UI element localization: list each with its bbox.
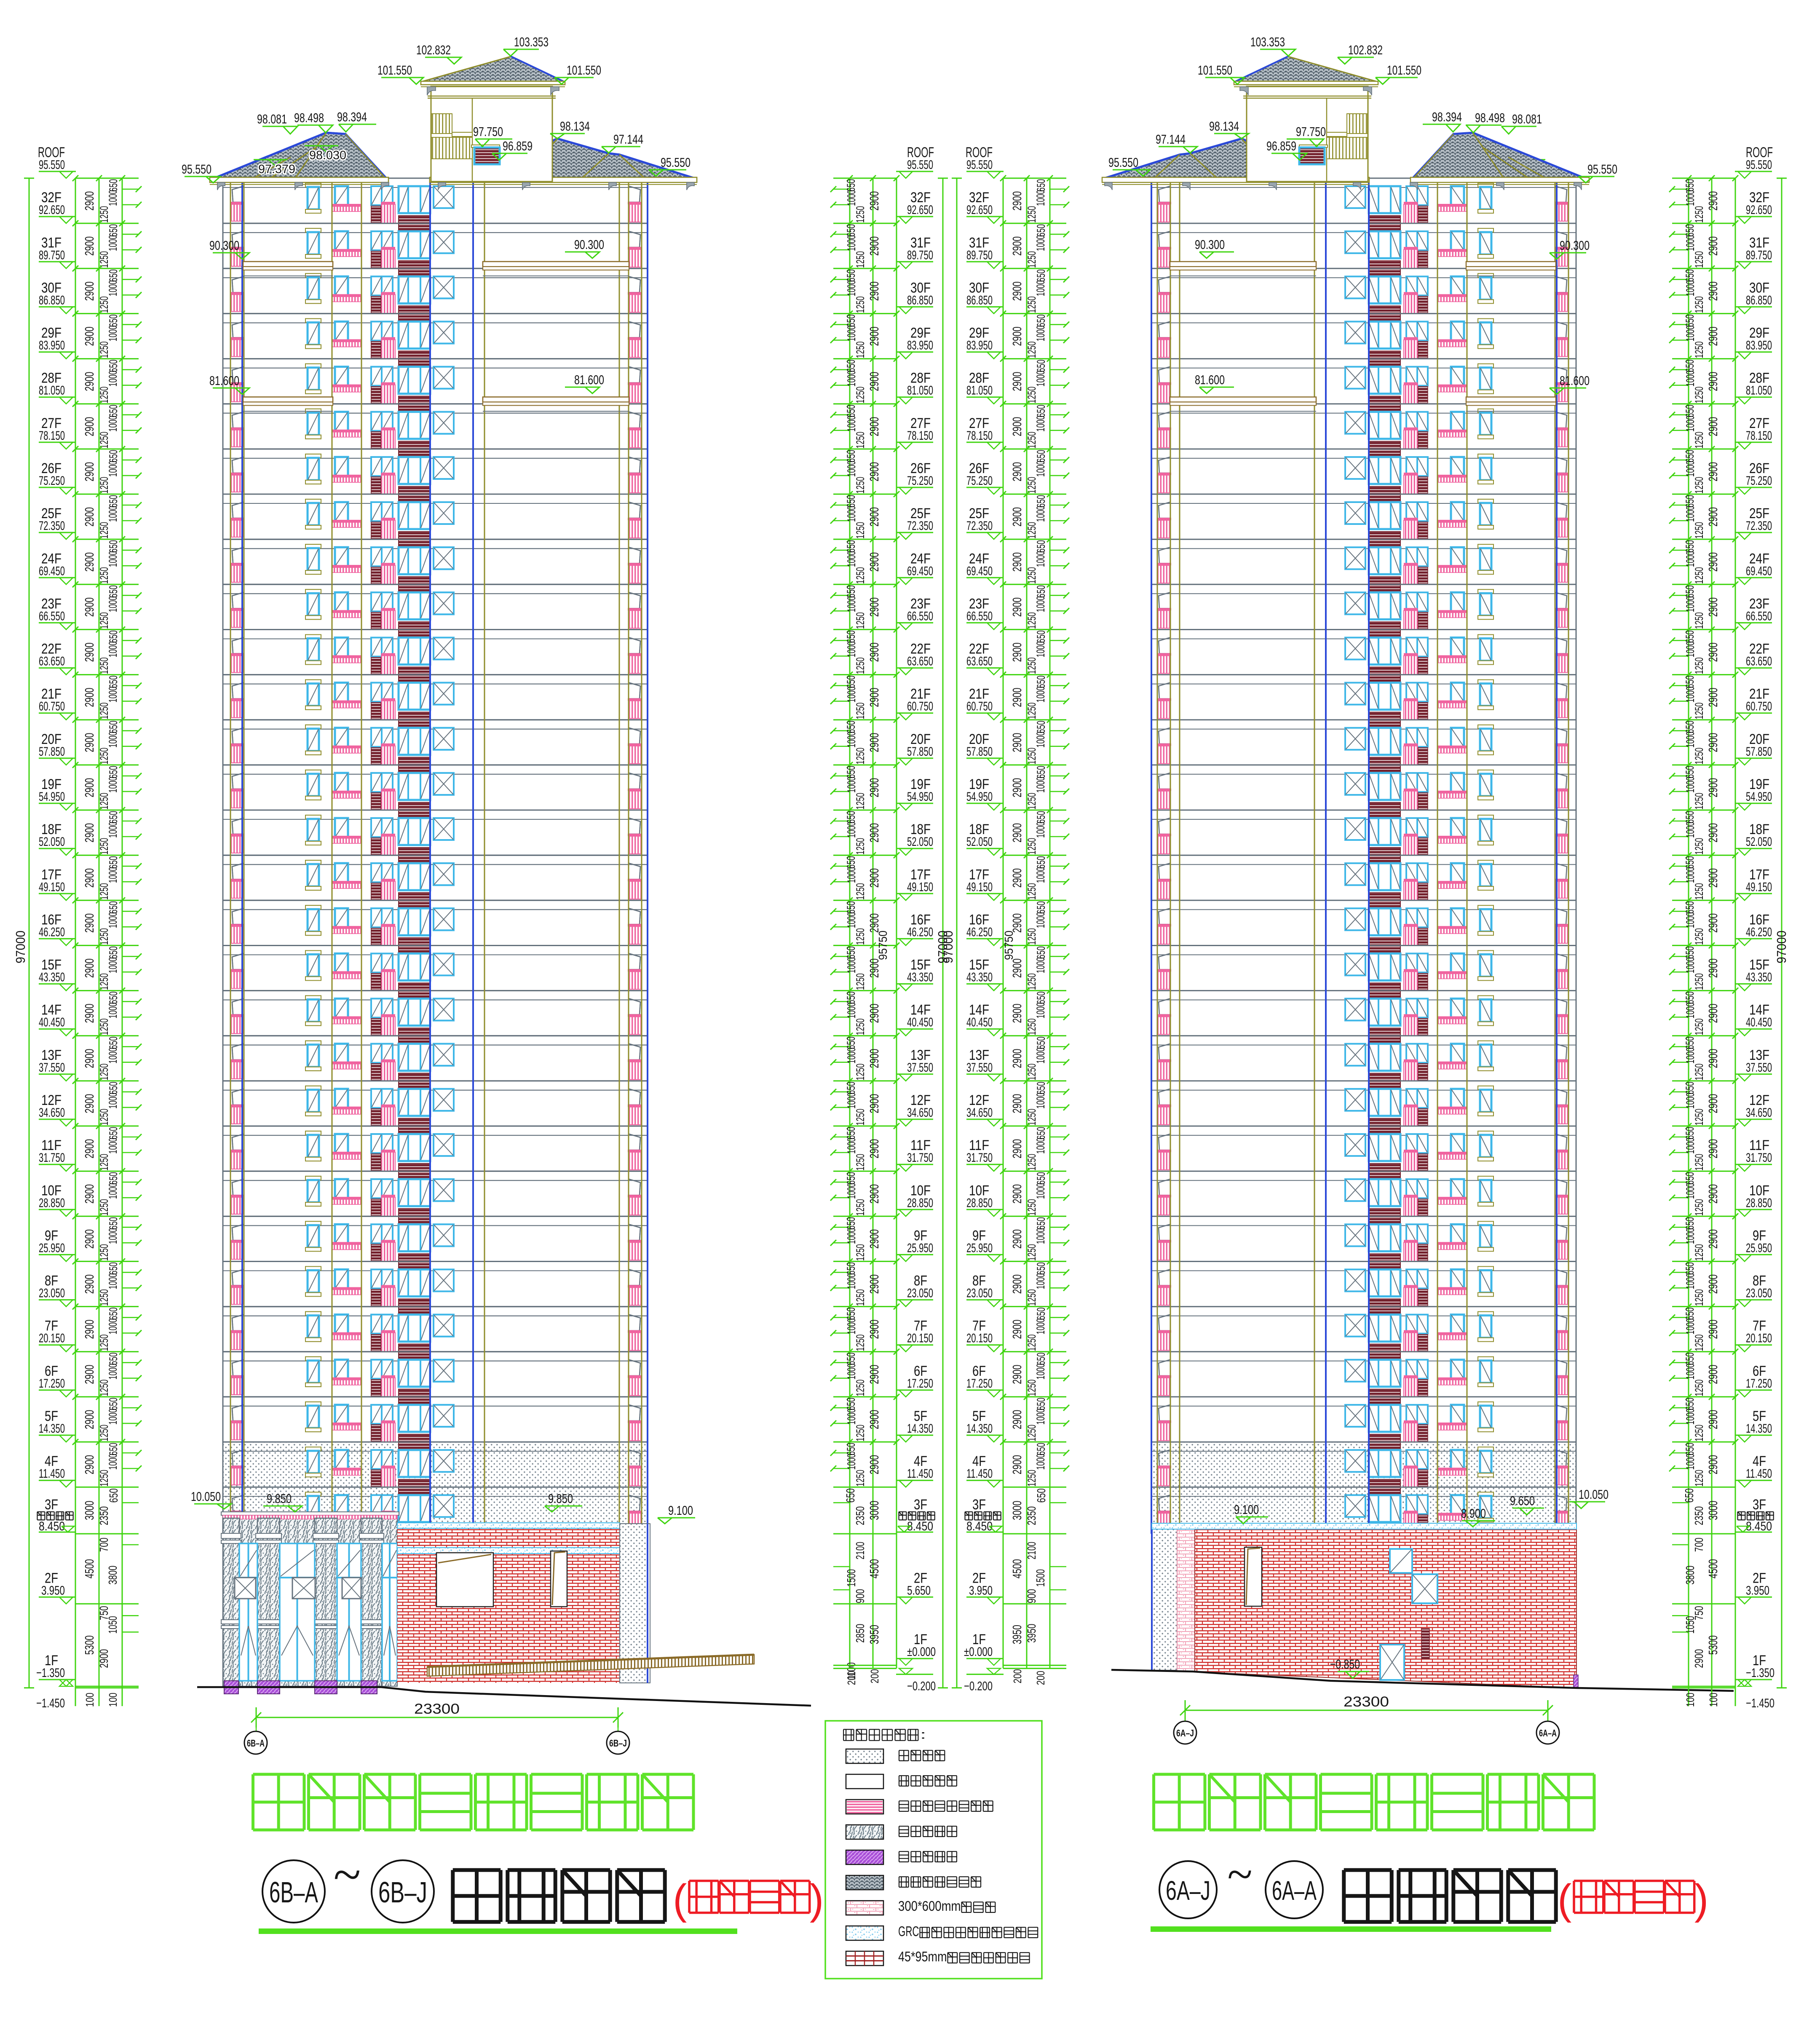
svg-text:97000: 97000 xyxy=(13,931,28,963)
svg-text:650: 650 xyxy=(1683,630,1696,643)
svg-text:95750: 95750 xyxy=(1002,931,1015,960)
svg-text:1250: 1250 xyxy=(1693,793,1705,810)
svg-text:1000: 1000 xyxy=(845,280,858,296)
svg-text:1000: 1000 xyxy=(1034,957,1047,973)
svg-text:1000: 1000 xyxy=(845,551,858,567)
svg-text:63.650: 63.650 xyxy=(39,655,65,669)
svg-text:650: 650 xyxy=(1683,405,1696,417)
svg-text:1000: 1000 xyxy=(845,641,858,657)
svg-text:46.250: 46.250 xyxy=(1746,925,1772,939)
svg-text:1000: 1000 xyxy=(1034,596,1047,612)
svg-text:2900: 2900 xyxy=(1707,1094,1720,1113)
svg-text:2900: 2900 xyxy=(868,417,881,436)
svg-text:1250: 1250 xyxy=(98,1470,110,1487)
svg-text:1000: 1000 xyxy=(107,1409,119,1425)
svg-text:11.450: 11.450 xyxy=(1746,1467,1772,1481)
svg-text:1000: 1000 xyxy=(1684,416,1697,432)
svg-text:1000: 1000 xyxy=(107,1093,119,1109)
svg-text:66.550: 66.550 xyxy=(39,609,65,623)
svg-text:650: 650 xyxy=(845,1308,857,1320)
svg-text:1000: 1000 xyxy=(107,732,119,748)
svg-text:650: 650 xyxy=(845,269,857,282)
svg-text:1250: 1250 xyxy=(1693,973,1705,990)
svg-text:1000: 1000 xyxy=(107,1138,119,1154)
svg-text:650: 650 xyxy=(845,1353,857,1365)
svg-text:23.050: 23.050 xyxy=(907,1286,933,1300)
svg-text:1250: 1250 xyxy=(98,567,110,584)
svg-text:3950: 3950 xyxy=(868,1625,881,1644)
svg-text:63.650: 63.650 xyxy=(907,655,933,669)
svg-text:10.050: 10.050 xyxy=(191,1489,221,1504)
svg-text:60.750: 60.750 xyxy=(1746,700,1772,714)
svg-text:96.859: 96.859 xyxy=(503,139,533,153)
svg-text:2900: 2900 xyxy=(83,1139,96,1158)
svg-text:2900: 2900 xyxy=(1707,281,1720,301)
svg-text:2900: 2900 xyxy=(868,1229,881,1249)
svg-text:101.550: 101.550 xyxy=(1198,63,1232,78)
svg-text:1000: 1000 xyxy=(845,822,858,838)
svg-text:2900: 2900 xyxy=(868,688,881,707)
svg-text:40.450: 40.450 xyxy=(966,1016,993,1030)
svg-text:1000: 1000 xyxy=(107,1003,119,1019)
svg-text:650: 650 xyxy=(845,540,857,553)
svg-text:650: 650 xyxy=(845,495,857,508)
svg-text:1000: 1000 xyxy=(1034,777,1047,793)
svg-text:1000: 1000 xyxy=(1034,1454,1047,1470)
svg-text:25.950: 25.950 xyxy=(39,1241,65,1255)
svg-text:2900: 2900 xyxy=(1707,778,1720,797)
svg-text:650: 650 xyxy=(1035,992,1047,1004)
svg-text:95.550: 95.550 xyxy=(182,162,211,177)
svg-text:650: 650 xyxy=(107,450,120,463)
svg-text:650: 650 xyxy=(845,360,857,372)
svg-text:1250: 1250 xyxy=(1693,1470,1705,1487)
svg-text:95.550: 95.550 xyxy=(966,158,993,172)
svg-text:1250: 1250 xyxy=(98,1064,110,1081)
svg-text:1250: 1250 xyxy=(98,703,110,719)
svg-text:1000: 1000 xyxy=(845,1228,858,1244)
svg-text:81.050: 81.050 xyxy=(39,384,65,398)
svg-text:1000: 1000 xyxy=(1034,1319,1047,1335)
svg-text:1250: 1250 xyxy=(1693,612,1705,629)
svg-text:1000: 1000 xyxy=(107,235,119,251)
svg-text:1000: 1000 xyxy=(107,551,119,567)
svg-text:(: ( xyxy=(1558,1876,1571,1923)
svg-text:40.450: 40.450 xyxy=(907,1016,933,1030)
svg-text:1000: 1000 xyxy=(845,1183,858,1199)
svg-text:25.950: 25.950 xyxy=(907,1241,933,1255)
svg-text:1000: 1000 xyxy=(1684,957,1697,973)
svg-text:2900: 2900 xyxy=(83,1229,96,1249)
svg-text:3000: 3000 xyxy=(1707,1501,1720,1520)
svg-text:650: 650 xyxy=(107,224,120,237)
svg-text:1250: 1250 xyxy=(1025,703,1038,719)
svg-text:1000: 1000 xyxy=(107,325,119,341)
svg-text:650: 650 xyxy=(845,766,857,778)
svg-text:2900: 2900 xyxy=(1707,688,1720,707)
svg-text:1250: 1250 xyxy=(854,612,867,629)
svg-text:2900: 2900 xyxy=(868,1139,881,1158)
svg-text:650: 650 xyxy=(1035,495,1047,508)
svg-text:650: 650 xyxy=(107,1217,120,1230)
svg-text:1250: 1250 xyxy=(1025,1244,1038,1261)
svg-text:81.600: 81.600 xyxy=(209,373,239,388)
svg-text:3F: 3F xyxy=(914,1497,927,1513)
svg-text:650: 650 xyxy=(845,901,857,914)
svg-text:1050: 1050 xyxy=(106,1616,119,1634)
svg-text:2900: 2900 xyxy=(83,236,96,256)
svg-text:57.850: 57.850 xyxy=(966,745,993,759)
svg-text:2900: 2900 xyxy=(868,191,881,211)
svg-text:81.050: 81.050 xyxy=(1746,384,1772,398)
svg-text:1250: 1250 xyxy=(1693,432,1705,449)
svg-text:14.350: 14.350 xyxy=(966,1422,993,1436)
svg-text:2900: 2900 xyxy=(1011,1139,1024,1158)
svg-text:1250: 1250 xyxy=(854,838,867,855)
svg-text:1000: 1000 xyxy=(107,280,119,296)
svg-text:83.950: 83.950 xyxy=(907,339,933,353)
svg-text:78.150: 78.150 xyxy=(1746,429,1772,443)
svg-text:98.134: 98.134 xyxy=(1209,119,1239,134)
svg-text:2900: 2900 xyxy=(1707,597,1720,617)
svg-text:2900: 2900 xyxy=(1011,417,1024,436)
svg-text:1500: 1500 xyxy=(1034,1569,1047,1587)
svg-text:2900: 2900 xyxy=(1011,462,1024,481)
svg-text:650: 650 xyxy=(107,1127,120,1139)
svg-text:650: 650 xyxy=(845,405,857,417)
svg-text:92.650: 92.650 xyxy=(966,203,993,217)
svg-text:650: 650 xyxy=(1035,269,1047,282)
svg-text:3000: 3000 xyxy=(868,1501,881,1520)
svg-text:1000: 1000 xyxy=(107,190,119,206)
svg-text:650: 650 xyxy=(1035,630,1047,643)
svg-text:69.450: 69.450 xyxy=(39,564,65,578)
svg-text:1000: 1000 xyxy=(1034,1183,1047,1199)
svg-text:2900: 2900 xyxy=(868,958,881,978)
svg-text:650: 650 xyxy=(845,179,857,192)
svg-text:2900: 2900 xyxy=(1707,372,1720,391)
svg-text:1250: 1250 xyxy=(1693,703,1705,719)
svg-text:1000: 1000 xyxy=(1034,687,1047,703)
svg-text:54.950: 54.950 xyxy=(966,790,993,804)
svg-text:2900: 2900 xyxy=(1011,1229,1024,1249)
svg-text:54.950: 54.950 xyxy=(39,790,65,804)
svg-text:75.250: 75.250 xyxy=(966,474,993,488)
svg-text:1250: 1250 xyxy=(1025,522,1038,539)
svg-text:2900: 2900 xyxy=(83,417,96,436)
svg-text:14.350: 14.350 xyxy=(907,1422,933,1436)
svg-text:97.379: 97.379 xyxy=(258,163,295,176)
svg-text:1250: 1250 xyxy=(854,1380,867,1396)
svg-text:2900: 2900 xyxy=(83,868,96,888)
svg-text:200: 200 xyxy=(845,1671,858,1685)
svg-text:1250: 1250 xyxy=(98,1380,110,1396)
svg-text:1250: 1250 xyxy=(98,477,110,494)
svg-text:69.450: 69.450 xyxy=(966,564,993,578)
svg-text:650: 650 xyxy=(845,1127,857,1139)
svg-text:1000: 1000 xyxy=(1684,1228,1697,1244)
svg-text:650: 650 xyxy=(1035,901,1047,914)
svg-text:1000: 1000 xyxy=(107,596,119,612)
svg-text:2900: 2900 xyxy=(1707,1049,1720,1068)
svg-text:650: 650 xyxy=(1683,992,1696,1004)
svg-text:75.250: 75.250 xyxy=(1746,474,1772,488)
svg-text:2900: 2900 xyxy=(1011,868,1024,888)
svg-text:1250: 1250 xyxy=(98,1019,110,1035)
svg-text:1250: 1250 xyxy=(1025,341,1038,358)
svg-text:2900: 2900 xyxy=(1011,597,1024,617)
svg-text:1000: 1000 xyxy=(107,1319,119,1335)
svg-text:1000: 1000 xyxy=(1684,325,1697,341)
svg-text:1250: 1250 xyxy=(1025,612,1038,629)
svg-text:1250: 1250 xyxy=(1693,1064,1705,1081)
svg-text:650: 650 xyxy=(1683,450,1696,463)
svg-text:2900: 2900 xyxy=(1011,1184,1024,1204)
svg-text:89.750: 89.750 xyxy=(39,248,65,262)
svg-text:1250: 1250 xyxy=(98,296,110,313)
svg-text:46.250: 46.250 xyxy=(966,925,993,939)
svg-text:1000: 1000 xyxy=(1684,1138,1697,1154)
svg-text:1000: 1000 xyxy=(1684,1048,1697,1064)
svg-text:1250: 1250 xyxy=(854,1109,867,1126)
svg-text:2350: 2350 xyxy=(1025,1506,1038,1525)
svg-text:103.353: 103.353 xyxy=(1250,35,1285,49)
svg-text:31.750: 31.750 xyxy=(39,1151,65,1165)
svg-text:GRC: GRC xyxy=(898,1923,919,1939)
svg-text:1250: 1250 xyxy=(854,748,867,765)
svg-text:2900: 2900 xyxy=(1692,1649,1705,1668)
svg-text:1250: 1250 xyxy=(1025,1470,1038,1487)
svg-text:43.350: 43.350 xyxy=(1746,971,1772,984)
svg-text:97000: 97000 xyxy=(1774,931,1789,963)
svg-text:95.550: 95.550 xyxy=(39,158,65,172)
svg-text:90.300: 90.300 xyxy=(1195,237,1225,252)
svg-text:650: 650 xyxy=(1683,1488,1696,1503)
svg-text:2900: 2900 xyxy=(1011,778,1024,797)
svg-text:1250: 1250 xyxy=(854,657,867,674)
svg-text:6B–A: 6B–A xyxy=(269,1876,318,1909)
svg-text:1250: 1250 xyxy=(1025,883,1038,900)
svg-text:23.050: 23.050 xyxy=(1746,1286,1772,1300)
svg-text:1000: 1000 xyxy=(1684,687,1697,703)
svg-text:2900: 2900 xyxy=(1011,1049,1024,1068)
svg-text:650: 650 xyxy=(107,1398,120,1410)
svg-text:90.300: 90.300 xyxy=(209,238,239,253)
svg-text:1250: 1250 xyxy=(1693,1425,1705,1442)
svg-text:34.650: 34.650 xyxy=(39,1106,65,1120)
svg-text:3F: 3F xyxy=(1753,1497,1766,1513)
svg-text:1000: 1000 xyxy=(845,1003,858,1019)
svg-text:60.750: 60.750 xyxy=(39,700,65,714)
svg-text:11.450: 11.450 xyxy=(907,1467,933,1481)
svg-text:97.144: 97.144 xyxy=(1156,132,1186,147)
svg-text:2900: 2900 xyxy=(1707,326,1720,346)
svg-text:2900: 2900 xyxy=(868,236,881,256)
svg-text:54.950: 54.950 xyxy=(907,790,933,804)
svg-text:2900: 2900 xyxy=(868,1410,881,1429)
svg-text:86.850: 86.850 xyxy=(966,293,993,307)
svg-text:1250: 1250 xyxy=(854,928,867,945)
svg-text:6A–J: 6A–J xyxy=(1176,1728,1194,1738)
svg-text:2900: 2900 xyxy=(1011,823,1024,842)
svg-text:2900: 2900 xyxy=(868,868,881,888)
svg-text:1000: 1000 xyxy=(1684,1319,1697,1335)
svg-text:40.450: 40.450 xyxy=(39,1016,65,1030)
svg-text:72.350: 72.350 xyxy=(39,519,65,533)
svg-text:1000: 1000 xyxy=(1034,1228,1047,1244)
svg-text:650: 650 xyxy=(1035,1308,1047,1320)
svg-text::: : xyxy=(920,1728,926,1742)
svg-text:3F: 3F xyxy=(972,1497,986,1513)
svg-text:2900: 2900 xyxy=(868,823,881,842)
svg-text:2900: 2900 xyxy=(868,642,881,662)
svg-text:1250: 1250 xyxy=(1693,1019,1705,1035)
svg-text:25.950: 25.950 xyxy=(966,1241,993,1255)
svg-text:72.350: 72.350 xyxy=(1746,519,1772,533)
svg-text:2900: 2900 xyxy=(1011,1365,1024,1384)
svg-text:1000: 1000 xyxy=(1034,867,1047,883)
svg-text:1250: 1250 xyxy=(1025,567,1038,584)
svg-text:66.550: 66.550 xyxy=(1746,609,1772,623)
svg-text:75.250: 75.250 xyxy=(907,474,933,488)
svg-text:1000: 1000 xyxy=(1034,235,1047,251)
svg-text:1000: 1000 xyxy=(1684,461,1697,477)
svg-text:650: 650 xyxy=(845,450,857,463)
svg-text:−1.350: −1.350 xyxy=(36,1666,65,1680)
svg-text:81.050: 81.050 xyxy=(907,384,933,398)
svg-text:1000: 1000 xyxy=(1034,641,1047,657)
svg-text:60.750: 60.750 xyxy=(907,700,933,714)
svg-text:1250: 1250 xyxy=(854,1154,867,1171)
svg-text:650: 650 xyxy=(845,1037,857,1049)
svg-text:2900: 2900 xyxy=(868,778,881,797)
svg-text:650: 650 xyxy=(107,992,120,1004)
svg-text:650: 650 xyxy=(107,1308,120,1320)
svg-text:2900: 2900 xyxy=(83,1004,96,1023)
svg-text:1250: 1250 xyxy=(1025,793,1038,810)
svg-text:6A–A: 6A–A xyxy=(1272,1875,1317,1906)
svg-text:2900: 2900 xyxy=(1707,913,1720,933)
svg-text:1000: 1000 xyxy=(1034,461,1047,477)
svg-text:650: 650 xyxy=(107,1443,120,1455)
svg-text:49.150: 49.150 xyxy=(966,880,993,894)
svg-text:650: 650 xyxy=(845,630,857,643)
svg-text:2900: 2900 xyxy=(1707,958,1720,978)
svg-text:2900: 2900 xyxy=(1011,1410,1024,1429)
svg-text:1250: 1250 xyxy=(1025,296,1038,313)
svg-text:1250: 1250 xyxy=(1693,838,1705,855)
svg-text:45*95mm: 45*95mm xyxy=(898,1949,947,1964)
svg-text:3950: 3950 xyxy=(1011,1625,1024,1644)
svg-text:2900: 2900 xyxy=(1707,642,1720,662)
svg-text:650: 650 xyxy=(845,1443,857,1455)
svg-text:37.550: 37.550 xyxy=(1746,1061,1772,1075)
svg-text:2900: 2900 xyxy=(868,372,881,391)
svg-text:650: 650 xyxy=(1035,1172,1047,1185)
svg-text:5300: 5300 xyxy=(1707,1635,1720,1655)
svg-text:650: 650 xyxy=(1683,856,1696,869)
svg-text:20.150: 20.150 xyxy=(966,1332,993,1345)
svg-text:49.150: 49.150 xyxy=(39,880,65,894)
svg-text:11.450: 11.450 xyxy=(966,1467,993,1481)
svg-text:1250: 1250 xyxy=(98,1289,110,1306)
svg-text:43.350: 43.350 xyxy=(39,971,65,984)
svg-text:14.350: 14.350 xyxy=(39,1422,65,1436)
svg-text:650: 650 xyxy=(1683,1308,1696,1320)
svg-text:1000: 1000 xyxy=(845,596,858,612)
svg-text:1250: 1250 xyxy=(1693,1380,1705,1396)
svg-text:46.250: 46.250 xyxy=(39,925,65,939)
svg-text:23.050: 23.050 xyxy=(966,1286,993,1300)
svg-text:2900: 2900 xyxy=(1707,823,1720,842)
svg-text:89.750: 89.750 xyxy=(1746,248,1772,262)
svg-text:650: 650 xyxy=(1035,224,1047,237)
svg-text:2900: 2900 xyxy=(83,1049,96,1068)
svg-text:2900: 2900 xyxy=(83,913,96,933)
svg-text:31.750: 31.750 xyxy=(966,1151,993,1165)
svg-text:52.050: 52.050 xyxy=(1746,835,1772,849)
svg-text:650: 650 xyxy=(1683,1443,1696,1455)
svg-text:1250: 1250 xyxy=(1025,1380,1038,1396)
svg-text:650: 650 xyxy=(107,901,120,914)
svg-text:98.081: 98.081 xyxy=(257,112,287,126)
svg-text:1250: 1250 xyxy=(1025,1019,1038,1035)
svg-text:102.832: 102.832 xyxy=(416,43,451,57)
svg-text:200: 200 xyxy=(868,1669,881,1683)
svg-text:2900: 2900 xyxy=(868,1094,881,1113)
svg-text:100: 100 xyxy=(1707,1693,1720,1707)
svg-text:8.900: 8.900 xyxy=(1461,1506,1486,1521)
svg-text:8.450: 8.450 xyxy=(966,1519,993,1533)
svg-text:31.750: 31.750 xyxy=(1746,1151,1772,1165)
svg-text:1250: 1250 xyxy=(1025,432,1038,449)
svg-text:3F: 3F xyxy=(45,1497,58,1513)
svg-text:28.850: 28.850 xyxy=(966,1196,993,1210)
svg-text:1000: 1000 xyxy=(107,687,119,703)
svg-text:2900: 2900 xyxy=(83,1410,96,1429)
svg-text:90.300: 90.300 xyxy=(574,237,604,252)
svg-text:1000: 1000 xyxy=(1684,1183,1697,1199)
svg-text:300*600mm: 300*600mm xyxy=(898,1898,961,1914)
svg-text:2900: 2900 xyxy=(868,597,881,617)
svg-text:1250: 1250 xyxy=(854,793,867,810)
svg-text:1250: 1250 xyxy=(1693,296,1705,313)
svg-text:92.650: 92.650 xyxy=(39,203,65,217)
svg-text:92.650: 92.650 xyxy=(907,203,933,217)
svg-text:1250: 1250 xyxy=(1693,1154,1705,1171)
svg-text:1000: 1000 xyxy=(845,1048,858,1064)
svg-text:650: 650 xyxy=(107,585,120,598)
svg-text:1000: 1000 xyxy=(845,867,858,883)
svg-text:1000: 1000 xyxy=(845,325,858,341)
svg-text:650: 650 xyxy=(107,676,120,688)
svg-text:650: 650 xyxy=(1683,1082,1696,1094)
svg-text:1000: 1000 xyxy=(845,732,858,748)
svg-text:700: 700 xyxy=(97,1538,110,1552)
svg-text:98.498: 98.498 xyxy=(294,110,324,125)
svg-text:89.750: 89.750 xyxy=(907,248,933,262)
svg-text:37.550: 37.550 xyxy=(39,1061,65,1075)
svg-text:650: 650 xyxy=(845,1398,857,1410)
svg-text:20.150: 20.150 xyxy=(39,1332,65,1345)
svg-text:1000: 1000 xyxy=(1684,1273,1697,1289)
svg-text:2900: 2900 xyxy=(868,552,881,572)
svg-text:650: 650 xyxy=(1683,269,1696,282)
svg-text:1000: 1000 xyxy=(1034,1048,1047,1064)
svg-text:1000: 1000 xyxy=(1684,506,1697,522)
svg-text:17.250: 17.250 xyxy=(966,1377,993,1391)
svg-text:9.650: 9.650 xyxy=(1510,1493,1535,1508)
